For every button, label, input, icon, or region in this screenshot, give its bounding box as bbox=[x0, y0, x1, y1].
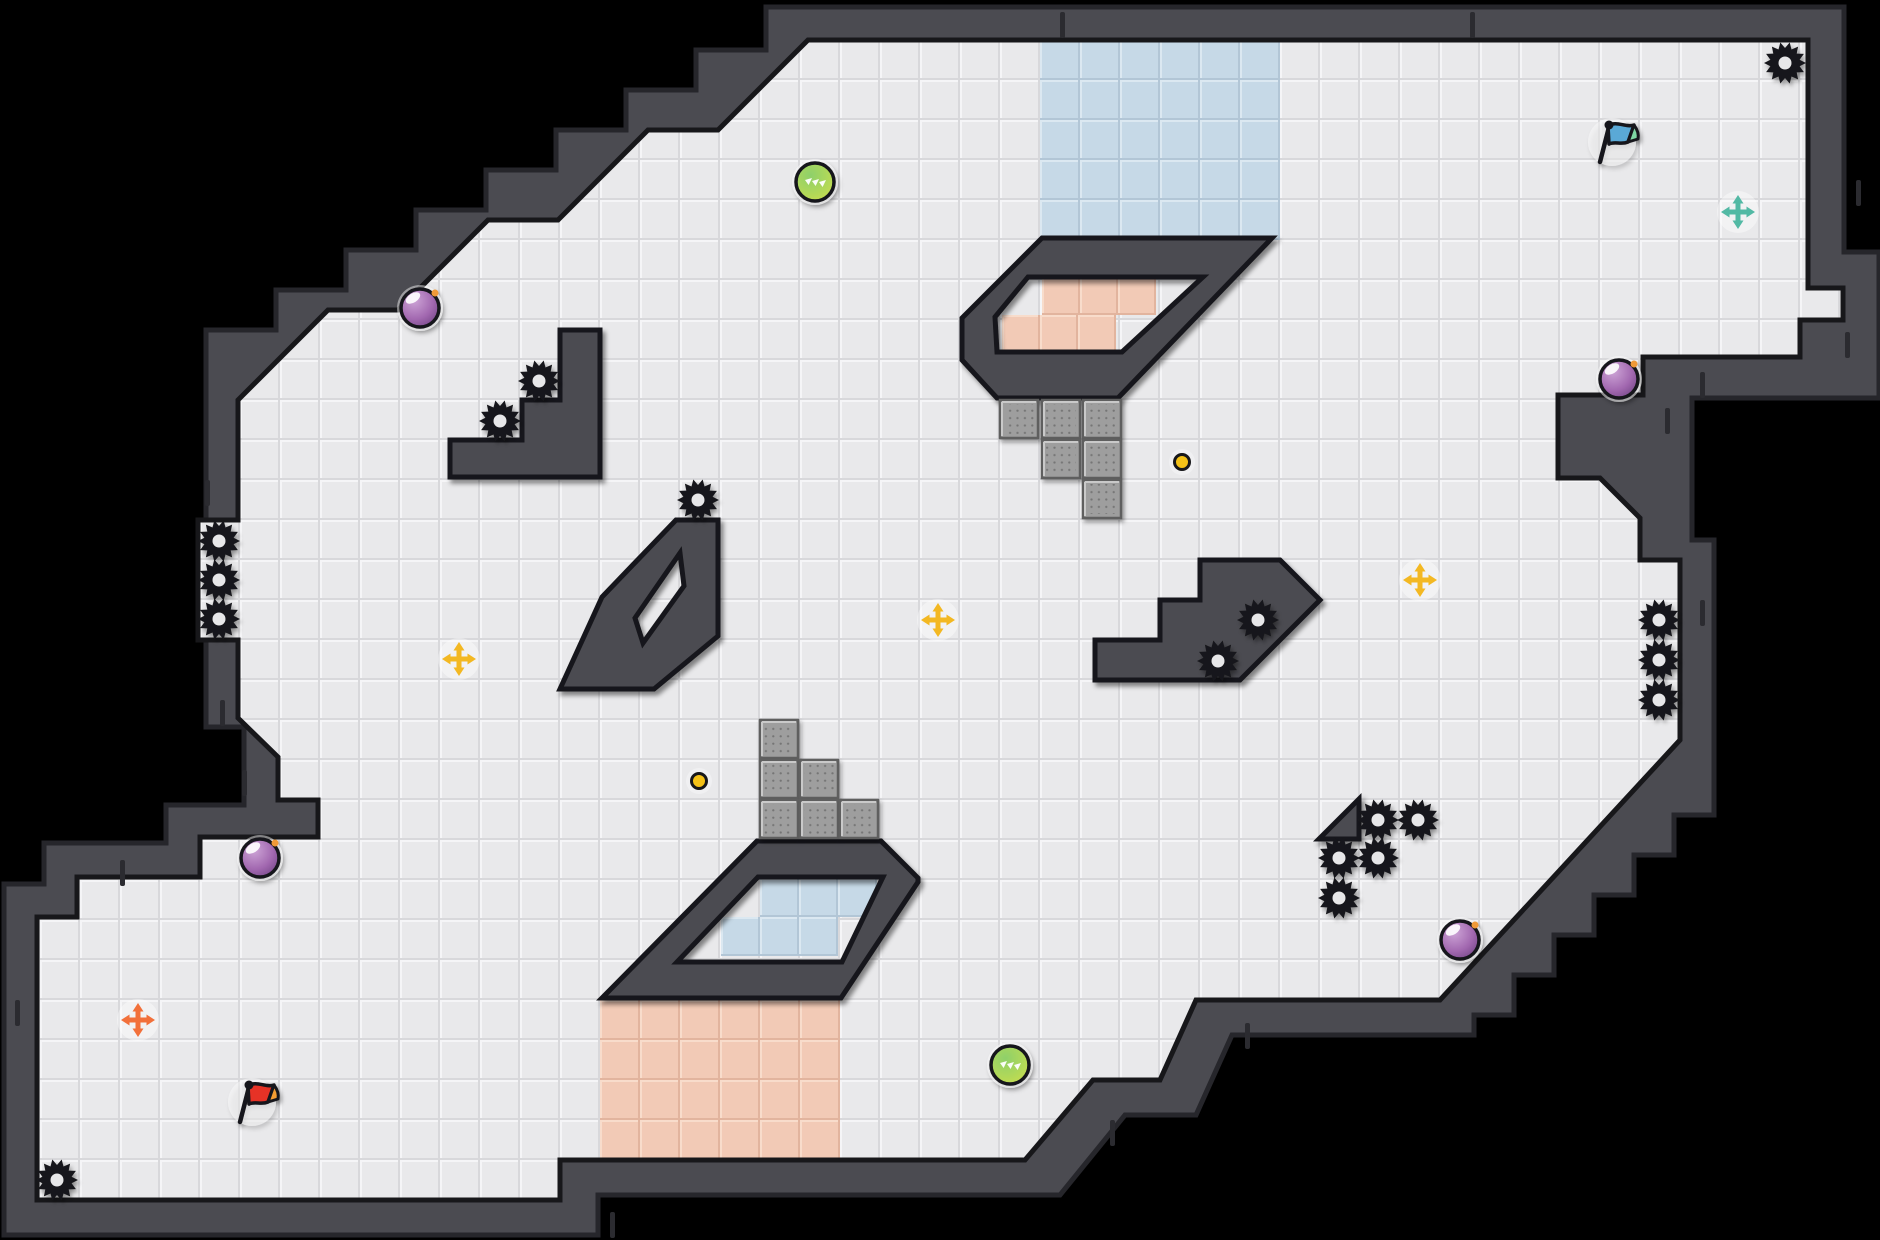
wall-seam bbox=[220, 700, 225, 726]
wall-seam bbox=[1245, 1023, 1250, 1049]
metal-block bbox=[840, 800, 878, 838]
metal-block bbox=[1083, 400, 1121, 438]
yellow-move-cross[interactable] bbox=[1399, 559, 1441, 601]
wall-seam bbox=[1856, 180, 1861, 206]
wall-seam bbox=[1845, 332, 1850, 358]
metal-block bbox=[760, 720, 798, 758]
yellow-move-cross[interactable] bbox=[438, 638, 480, 680]
wall-seam bbox=[205, 480, 210, 506]
metal-block bbox=[1083, 480, 1121, 518]
purple-orb[interactable] bbox=[1596, 356, 1642, 402]
wall-seam bbox=[120, 860, 125, 886]
wall-seam bbox=[1110, 1120, 1115, 1146]
metal-block bbox=[760, 800, 798, 838]
green-orb[interactable] bbox=[792, 159, 838, 205]
wall-seam bbox=[610, 1212, 615, 1238]
metal-block bbox=[800, 760, 838, 798]
teal-move-cross[interactable] bbox=[1717, 191, 1759, 233]
orange-move-cross[interactable] bbox=[117, 999, 159, 1041]
metal-block bbox=[760, 760, 798, 798]
wall-seam bbox=[1700, 372, 1705, 398]
lava-zone-bottom bbox=[600, 1000, 840, 1160]
wall-seam bbox=[242, 770, 247, 796]
metal-block bbox=[1000, 400, 1038, 438]
coin-dot[interactable] bbox=[1169, 449, 1195, 475]
purple-orb[interactable] bbox=[1437, 917, 1483, 963]
metal-block bbox=[1042, 440, 1080, 478]
purple-orb[interactable] bbox=[237, 835, 283, 881]
wall-seam bbox=[1470, 12, 1475, 38]
wall-seam bbox=[1700, 600, 1705, 626]
wall-seam bbox=[1060, 12, 1065, 38]
game-viewport bbox=[0, 0, 1880, 1240]
water-zone-top bbox=[1040, 40, 1280, 240]
coin-dot[interactable] bbox=[686, 768, 712, 794]
metal-block bbox=[800, 800, 838, 838]
wall-seam bbox=[15, 1000, 20, 1026]
purple-orb[interactable] bbox=[397, 285, 443, 331]
metal-block bbox=[1042, 400, 1080, 438]
metal-block bbox=[1083, 440, 1121, 478]
green-orb[interactable] bbox=[987, 1042, 1033, 1088]
yellow-move-cross[interactable] bbox=[917, 599, 959, 641]
level-map-canvas[interactable] bbox=[0, 0, 1880, 1240]
wall-seam bbox=[1665, 408, 1670, 434]
